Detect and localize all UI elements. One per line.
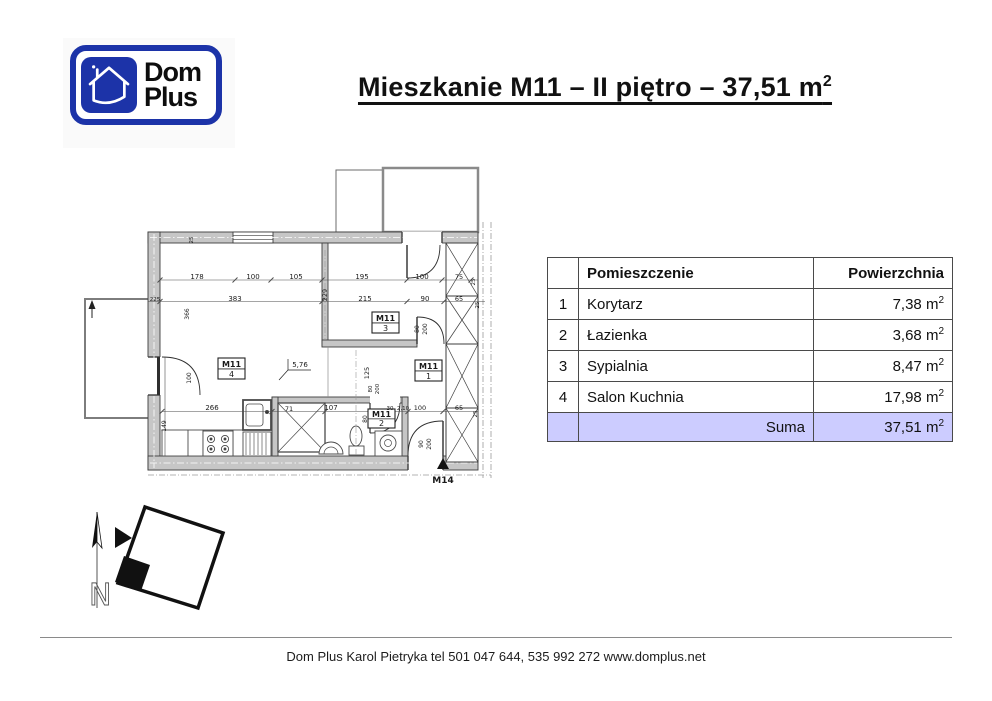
house-icon bbox=[81, 57, 137, 113]
sum-label: Suma bbox=[579, 413, 814, 442]
svg-text:M11: M11 bbox=[419, 362, 439, 371]
svg-text:1: 1 bbox=[426, 372, 431, 381]
table-row: 4Salon Kuchnia17,98 m2 bbox=[548, 382, 953, 413]
balcony-arrow bbox=[89, 300, 96, 318]
dim-label: 25 bbox=[189, 236, 195, 243]
dim-label: 215 bbox=[358, 295, 371, 303]
header-room: Pomieszczenie bbox=[579, 258, 814, 289]
dim-label: 178 bbox=[190, 273, 203, 281]
page-title-text: Mieszkanie M11 – II piętro – 37,51 m bbox=[358, 72, 823, 102]
footer-rule bbox=[40, 637, 952, 638]
site-plan bbox=[115, 507, 223, 608]
balcony bbox=[85, 299, 148, 418]
location-pointer-icon bbox=[115, 527, 132, 548]
dim-label: 100 bbox=[415, 273, 428, 281]
flyer-page: Dom Plus Mieszkanie M11 – II piętro – 37… bbox=[0, 0, 992, 701]
dim-label: 200 bbox=[426, 438, 433, 450]
entrance-marker-label: M14 bbox=[432, 476, 453, 486]
level-mark-value: 5,76 bbox=[292, 361, 308, 369]
dim-label: 90 bbox=[418, 440, 425, 448]
room-table: Pomieszczenie Powierzchnia 1Korytarz7,38… bbox=[547, 257, 953, 442]
logo-text: Dom Plus bbox=[144, 60, 201, 110]
dim-label: 80 bbox=[414, 325, 421, 333]
dim-label: 90 bbox=[421, 295, 430, 303]
stove bbox=[203, 431, 233, 456]
page-title-sup: 2 bbox=[823, 73, 832, 90]
logo-house-tile bbox=[81, 57, 137, 113]
dim-label: 225 bbox=[150, 297, 161, 303]
dim-label: 266 bbox=[205, 404, 219, 412]
dim-label: 200 bbox=[375, 383, 381, 394]
dim-label: 30 bbox=[387, 406, 394, 412]
dim-label: 100 bbox=[246, 273, 259, 281]
level-mark: 5,76 bbox=[279, 359, 311, 380]
header-index bbox=[548, 258, 579, 289]
table-row: 3Sypialnia8,47 m2 bbox=[548, 351, 953, 382]
dim-label: 195 bbox=[355, 273, 368, 281]
svg-text:2: 2 bbox=[379, 419, 384, 428]
dim-label: 200 bbox=[422, 323, 429, 335]
floor-plan: 5,76 M14 M113M114M111M112 17810010519510… bbox=[75, 160, 495, 490]
dim-label: 366 bbox=[184, 308, 191, 320]
dim-label: 65 bbox=[455, 404, 463, 412]
dim-label: 100 bbox=[414, 404, 426, 412]
dim-label: 149 bbox=[161, 420, 168, 432]
neighbour-outline bbox=[336, 168, 478, 232]
dim-label: 100 bbox=[186, 372, 193, 384]
svg-text:M11: M11 bbox=[222, 360, 242, 369]
page-title: Mieszkanie M11 – II piętro – 37,51 m2 bbox=[250, 72, 940, 103]
svg-text:3: 3 bbox=[383, 324, 388, 333]
cabinet bbox=[243, 432, 271, 456]
logo-text-line2: Plus bbox=[144, 85, 201, 110]
site-locator: N bbox=[80, 500, 250, 625]
dim-label: 25 bbox=[471, 278, 477, 285]
logo: Dom Plus bbox=[63, 38, 235, 148]
dim-label: 2,10 bbox=[397, 406, 410, 412]
dim-label: 25 bbox=[473, 410, 479, 417]
dim-label: 80 bbox=[362, 415, 369, 423]
dim-label: 107 bbox=[324, 404, 337, 412]
dim-label: 125 bbox=[363, 367, 371, 379]
north-label: N bbox=[89, 578, 111, 613]
logo-frame: Dom Plus bbox=[70, 45, 222, 125]
footer-text: Dom Plus Karol Pietryka tel 501 047 644,… bbox=[0, 649, 992, 664]
room-label: M111 bbox=[415, 360, 442, 381]
table-row: 2Łazienka3,68 m2 bbox=[548, 320, 953, 351]
table-row: 1Korytarz7,38 m2 bbox=[548, 289, 953, 320]
svg-text:M11: M11 bbox=[376, 314, 396, 323]
room-label: M114 bbox=[218, 358, 245, 379]
north-arrow-icon: N bbox=[89, 512, 111, 613]
sum-row: Suma 37,51 m2 bbox=[548, 413, 953, 442]
dim-label: 75 bbox=[455, 273, 463, 281]
dim-label: 25 bbox=[475, 301, 481, 308]
dim-label: 229 bbox=[321, 289, 329, 301]
dim-label: 383 bbox=[228, 295, 241, 303]
sum-area: 37,51 m2 bbox=[814, 413, 953, 442]
table-header-row: Pomieszczenie Powierzchnia bbox=[548, 258, 953, 289]
dim-label: 80 bbox=[368, 385, 374, 392]
dim-label: 105 bbox=[289, 273, 302, 281]
dim-label: 65 bbox=[455, 295, 463, 303]
svg-text:4: 4 bbox=[229, 370, 234, 379]
room-label: M113 bbox=[372, 312, 399, 333]
header-area: Powierzchnia bbox=[814, 258, 953, 289]
dim-label: 71 bbox=[285, 405, 293, 413]
